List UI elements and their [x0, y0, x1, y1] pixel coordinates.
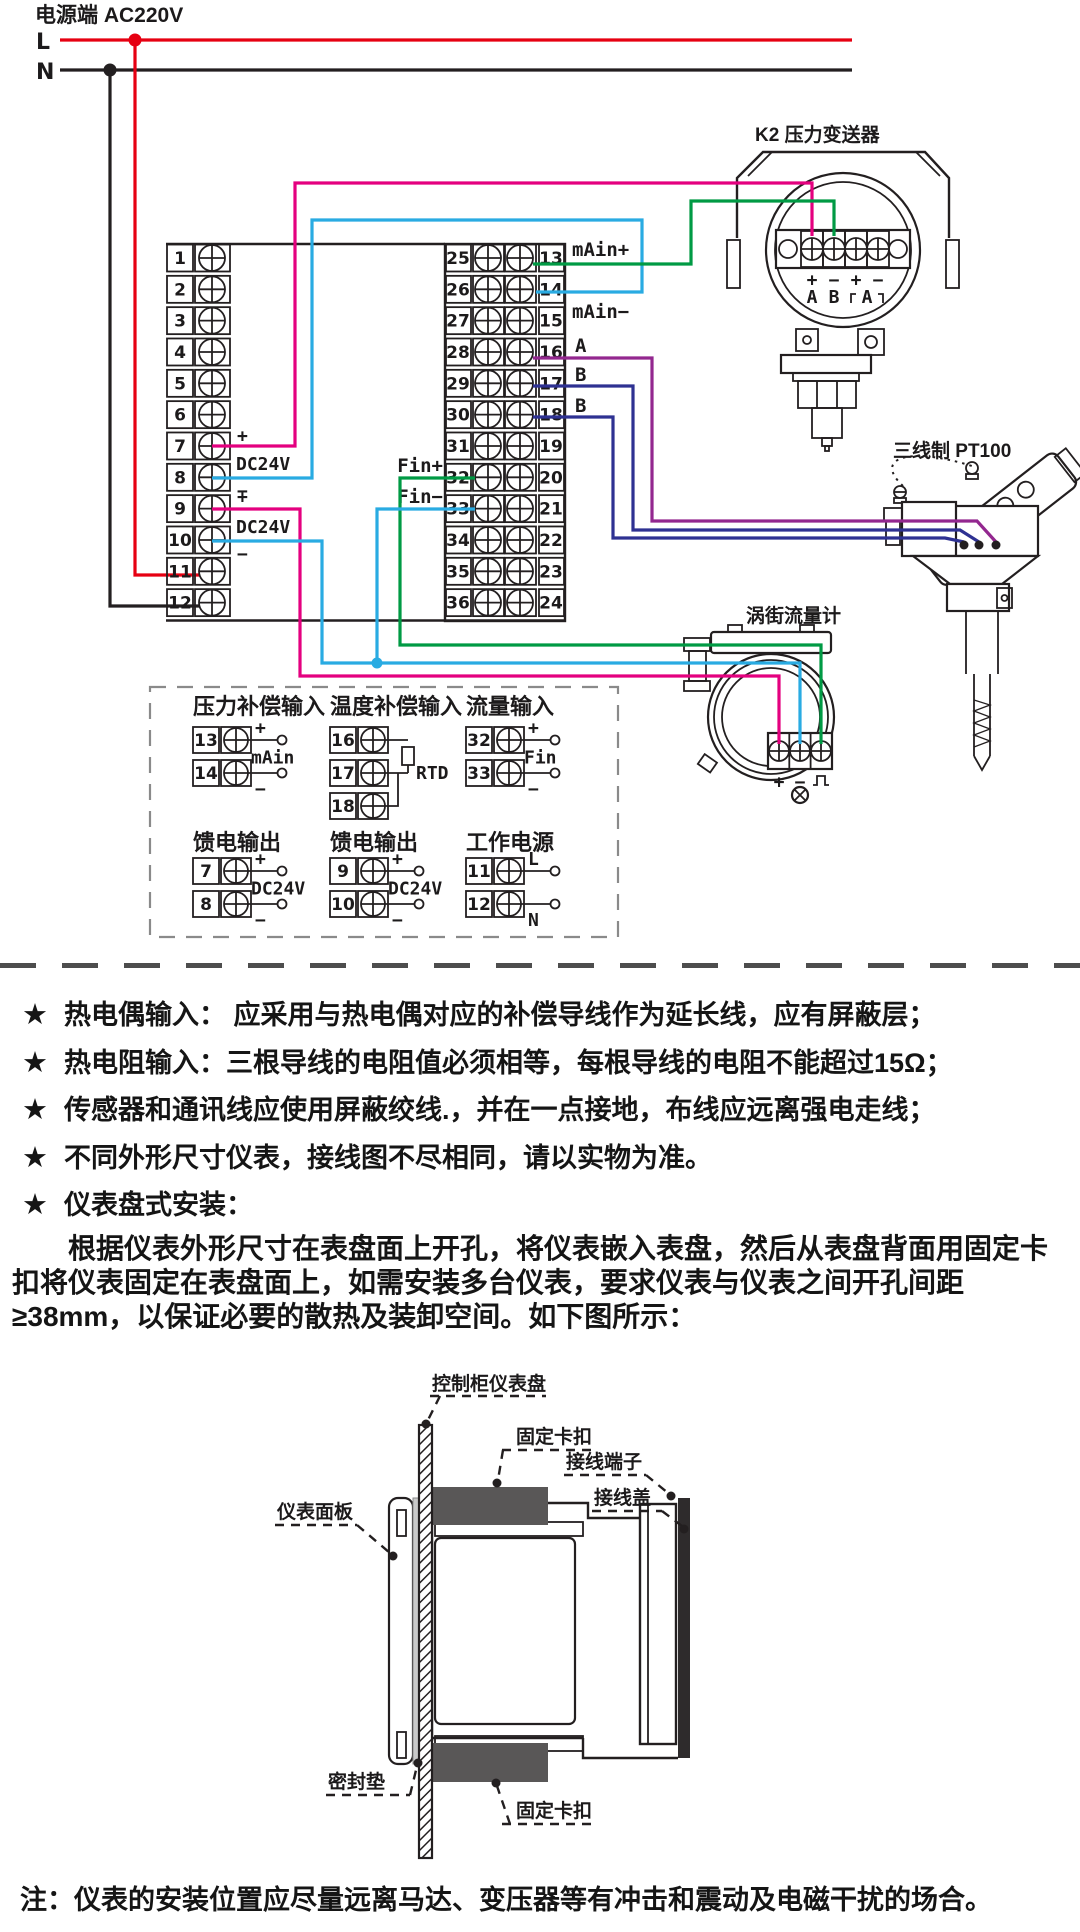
svg-text:7: 7: [200, 862, 212, 882]
pressure-transmitter-k2: K2 压力变送器 + − + − A B A: [727, 123, 959, 451]
pt100-label: 三线制 PT100: [893, 439, 1011, 462]
section-divider: [0, 963, 1080, 968]
transmitter-label: K2 压力变送器: [755, 123, 881, 146]
front-panel-label: 仪表面板: [276, 1500, 354, 1523]
note-text: 热电阻输入：三根导线的电阻值必须相等，每根导线的电阻不能超过15Ω；: [64, 1041, 953, 1080]
star-bullet-icon: ★: [22, 1045, 64, 1080]
svg-text:−: −: [528, 779, 539, 800]
power-title: 电源端 AC220V: [35, 4, 183, 27]
svg-text:30: 30: [446, 406, 470, 426]
power-rails: 电源端 AC220V L N: [35, 4, 852, 606]
svg-text:流量输入: 流量输入: [466, 694, 554, 719]
notes-list: ★ 热电偶输入： 应采用与热电偶对应的补偿导线作为延长线，应有屏蔽层； ★ 热电…: [22, 993, 1068, 1231]
svg-text:温度补偿输入: 温度补偿输入: [330, 694, 462, 719]
svg-text:2: 2: [174, 280, 186, 300]
main-minus-label: mAin−: [572, 301, 629, 323]
svg-text:26: 26: [446, 280, 470, 300]
tx-sign: −: [873, 270, 884, 291]
svg-text:14: 14: [194, 764, 218, 784]
svg-text:11: 11: [168, 562, 192, 582]
svg-text:21: 21: [539, 500, 563, 520]
vortex-minus-label: −: [795, 772, 806, 793]
svg-text:9: 9: [174, 500, 186, 520]
display-window: [435, 1538, 575, 1724]
panel-label: 控制柜仪表盘: [432, 1372, 546, 1395]
vortex-label: 涡街流量计: [746, 604, 841, 627]
svg-text:25: 25: [446, 249, 470, 269]
svg-text:20: 20: [539, 468, 563, 488]
svg-text:12: 12: [467, 895, 491, 915]
detail-group: 温度补偿输入161718RTD: [330, 694, 462, 819]
star-bullet-icon: ★: [22, 1140, 64, 1175]
note-item: ★ 仪表盘式安装：: [22, 1183, 1068, 1231]
fin-plus-label: Fin+: [397, 455, 443, 477]
plus-label: +: [237, 426, 248, 447]
tx-b: B: [829, 287, 840, 308]
svg-text:−: −: [392, 910, 403, 931]
pt100-terminal-dot: [960, 541, 969, 550]
pt100-terminal-dot: [992, 541, 1001, 550]
svg-text:+: +: [528, 718, 539, 739]
blue-junction-dot: [372, 658, 383, 669]
svg-text:+: +: [255, 849, 266, 870]
note-item: ★ 不同外形尺寸仪表，接线图不尽相同，请以实物为准。: [22, 1136, 1068, 1184]
svg-text:13: 13: [539, 249, 563, 269]
svg-text:29: 29: [446, 374, 470, 394]
svg-text:7: 7: [174, 437, 186, 457]
line-l-label: L: [36, 30, 50, 55]
line-n-label: N: [36, 60, 54, 85]
front-bezel: [389, 1498, 413, 1764]
svg-text:22: 22: [539, 531, 563, 551]
svg-text:mAin: mAin: [251, 748, 294, 769]
svg-text:RTD: RTD: [416, 763, 449, 784]
svg-text:31: 31: [446, 437, 470, 457]
svg-text:−: −: [255, 779, 266, 800]
fixing-clip-top: [432, 1487, 548, 1525]
svg-text:36: 36: [446, 594, 470, 614]
svg-text:9: 9: [337, 862, 349, 882]
svg-text:工作电源: 工作电源: [466, 830, 554, 855]
svg-text:1: 1: [174, 249, 186, 269]
plus-label: +: [237, 487, 248, 508]
svg-text:5: 5: [174, 374, 186, 394]
svg-text:馈电输出: 馈电输出: [330, 830, 418, 855]
panel-install-diagram: 控制柜仪表盘 固定卡扣 接线端子 接线盖 仪表面板 密封垫 固定: [0, 1368, 1080, 1932]
detail-group: 工作电源1112LN: [466, 830, 560, 931]
wire-7-to-transmitter: [212, 183, 812, 446]
svg-text:10: 10: [331, 895, 355, 915]
svg-text:3: 3: [174, 312, 186, 332]
svg-text:27: 27: [446, 312, 470, 332]
star-bullet-icon: ★: [22, 1092, 64, 1127]
svg-text:14: 14: [539, 280, 563, 300]
detail-group: 流量输入3233+−Fin: [466, 694, 560, 800]
svg-text:23: 23: [539, 562, 563, 582]
left-terminal-block: 123456789101112: [167, 245, 230, 617]
rs485-a-label: A: [575, 335, 587, 357]
rs485-b-label: B: [575, 364, 586, 386]
terminal-comb: [640, 1504, 676, 1744]
detail-group: 馈电输出910+−DC24V: [330, 830, 442, 931]
clip-top-label: 固定卡扣: [516, 1425, 592, 1448]
svg-text:馈电输出: 馈电输出: [193, 830, 281, 855]
svg-text:DC24V: DC24V: [388, 879, 442, 900]
wiring-manual-page: 电源端 AC220V L N 123456789101112 251326142…: [0, 0, 1080, 1932]
note-item: ★ 热电阻输入：三根导线的电阻值必须相等，每根导线的电阻不能超过15Ω；: [22, 1041, 1068, 1089]
svg-text:17: 17: [539, 374, 563, 394]
fin-minus-label: Fin−: [397, 486, 443, 508]
terminals-label: 接线端子: [566, 1450, 642, 1473]
star-bullet-icon: ★: [22, 1187, 64, 1222]
svg-text:11: 11: [467, 862, 491, 882]
svg-text:12: 12: [168, 594, 192, 614]
pt100-terminal-dot: [975, 541, 984, 550]
svg-text:8: 8: [200, 895, 212, 915]
main-plus-label: mAin+: [572, 239, 629, 261]
svg-text:+: +: [255, 718, 266, 739]
svg-text:16: 16: [331, 731, 355, 751]
svg-text:4: 4: [174, 343, 186, 363]
svg-text:28: 28: [446, 343, 470, 363]
svg-text:15: 15: [539, 312, 563, 332]
tx-sign: +: [851, 270, 862, 291]
svg-text:Fin: Fin: [524, 748, 557, 769]
svg-text:35: 35: [446, 562, 470, 582]
note-text: 不同外形尺寸仪表，接线图不尽相同，请以实物为准。: [64, 1136, 712, 1175]
svg-text:压力补偿输入: 压力补偿输入: [193, 694, 325, 719]
note-item: ★ 传感器和通讯线应使用屏蔽绞线.，并在一点接地，布线应远离强电走线；: [22, 1088, 1068, 1136]
wiring-diagram: 电源端 AC220V L N 123456789101112 251326142…: [0, 0, 1080, 975]
svg-text:32: 32: [467, 731, 491, 751]
cabinet-panel-bar: [419, 1425, 432, 1858]
star-bullet-icon: ★: [22, 997, 64, 1032]
svg-text:16: 16: [539, 343, 563, 363]
svg-text:19: 19: [539, 437, 563, 457]
svg-text:N: N: [528, 910, 539, 931]
mid-block-labels: mAin+ mAin− A B B Fin+ Fin−: [397, 239, 629, 508]
detail-group: 压力补偿输入1314+−mAin: [193, 694, 325, 800]
clip-bottom-label: 固定卡扣: [516, 1799, 592, 1822]
terminal-cover-bar: [678, 1498, 690, 1758]
vortex-plus-label: +: [774, 772, 785, 793]
svg-text:DC24V: DC24V: [251, 879, 305, 900]
note-text: 热电偶输入： 应采用与热电偶对应的补偿导线作为延长线，应有屏蔽层；: [64, 993, 936, 1032]
dc24v-label: DC24V: [236, 517, 290, 538]
svg-text:34: 34: [446, 531, 470, 551]
install-paragraph: 根据仪表外形尺寸在表盘面上开孔，将仪表嵌入表盘，然后从表盘背面用固定卡扣将仪表固…: [12, 1232, 1070, 1334]
middle-terminal-block: 2513261427152816291730183119322033213422…: [445, 244, 565, 621]
svg-text:−: −: [255, 910, 266, 931]
note-text: 仪表盘式安装：: [64, 1183, 253, 1222]
svg-text:8: 8: [174, 468, 186, 488]
svg-text:13: 13: [194, 731, 218, 751]
tx-a: A: [807, 287, 818, 308]
svg-text:33: 33: [467, 764, 491, 784]
dc24v-label: DC24V: [236, 454, 290, 475]
gasket-label: 密封垫: [328, 1770, 385, 1793]
tx-a2: A: [862, 287, 873, 308]
svg-text:L: L: [528, 849, 539, 870]
cover-label: 接线盖: [594, 1486, 651, 1509]
rs485-b-label: B: [575, 395, 586, 417]
minus-label: −: [237, 544, 248, 565]
vortex-flowmeter: 涡街流量计 + −: [684, 604, 841, 803]
svg-text:6: 6: [174, 406, 186, 426]
svg-text:18: 18: [331, 797, 355, 817]
svg-text:17: 17: [331, 764, 355, 784]
pt100-sensor: 三线制 PT100: [884, 439, 1080, 770]
svg-text:10: 10: [168, 531, 192, 551]
pulse-icon: [813, 776, 829, 785]
fixing-clip-bottom: [432, 1743, 548, 1782]
note-item: ★ 热电偶输入： 应采用与热电偶对应的补偿导线作为延长线，应有屏蔽层；: [22, 993, 1068, 1041]
footer-note: 注：仪表的安装位置应尽量远离马达、变压器等有冲击和震动及电磁干扰的场合。: [20, 1878, 1070, 1917]
terminal-detail-groups: 压力补偿输入1314+−mAin温度补偿输入161718RTD流量输入3233+…: [193, 694, 560, 931]
detail-group: 馈电输出78+−DC24V: [193, 830, 305, 931]
svg-text:+: +: [392, 849, 403, 870]
note-text: 传感器和通讯线应使用屏蔽绞线.，并在一点接地，布线应远离强电走线；: [64, 1088, 936, 1127]
svg-text:24: 24: [539, 594, 563, 614]
